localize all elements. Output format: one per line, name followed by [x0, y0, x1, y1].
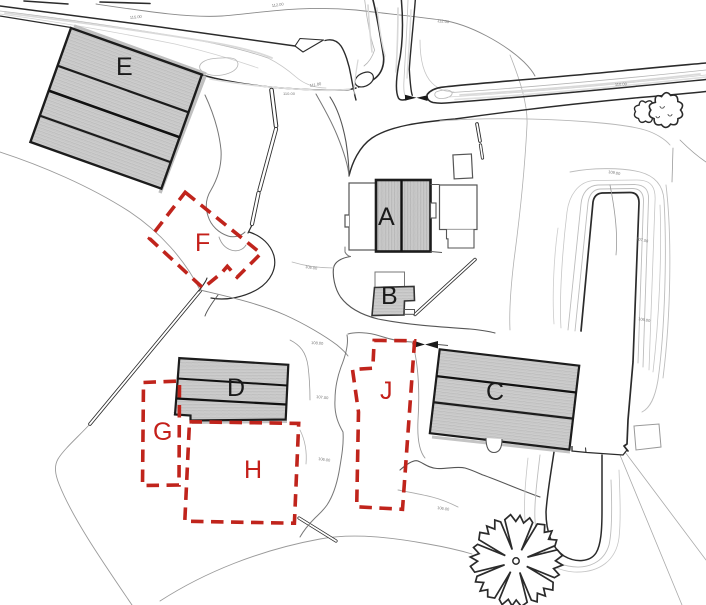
svg-text:E: E: [116, 53, 133, 81]
svg-text:H: H: [244, 456, 262, 484]
svg-text:108.00: 108.00: [311, 340, 324, 346]
svg-text:C: C: [486, 378, 504, 406]
svg-text:J: J: [380, 377, 393, 405]
svg-text:A: A: [378, 203, 395, 231]
svg-text:D: D: [227, 374, 245, 402]
svg-text:110.00: 110.00: [283, 91, 296, 96]
svg-text:G: G: [153, 418, 172, 446]
svg-text:110.00: 110.00: [615, 81, 628, 87]
svg-text:B: B: [381, 282, 398, 310]
svg-text:F: F: [195, 229, 210, 257]
